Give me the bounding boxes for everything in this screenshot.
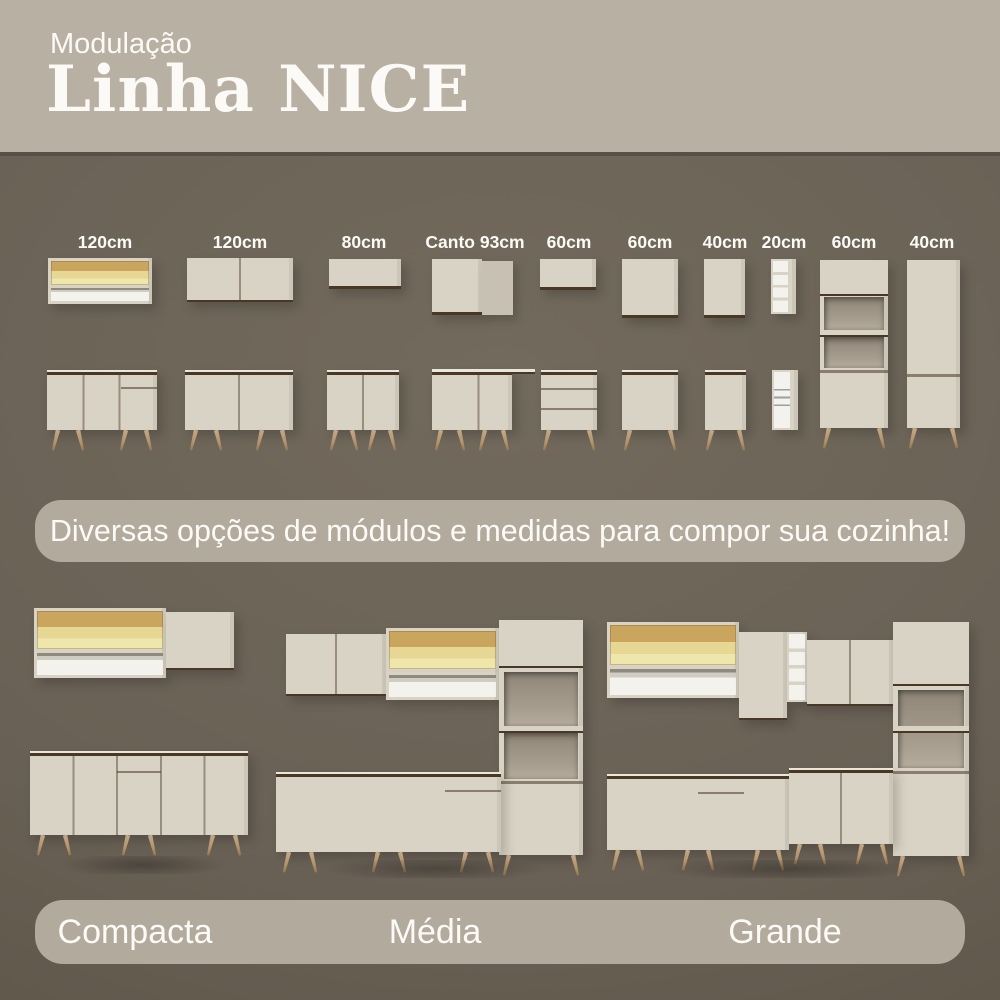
glass-door-panel [389, 631, 496, 669]
oven-tower-with-niches [893, 622, 969, 856]
cabinet-legs [912, 428, 955, 449]
tower-shelf [893, 726, 969, 733]
cabinet-legs [826, 428, 882, 449]
tall-cabinet-2-doors [907, 260, 960, 428]
wood-strip [893, 771, 969, 774]
base-cabinet-3-doors-1-drawer [47, 370, 157, 430]
cabinet-legs [482, 430, 506, 451]
cabinet-legs [709, 430, 742, 451]
cabinet-legs [193, 430, 219, 451]
ground-shadow [28, 856, 258, 874]
size-label-compacta: Compacta [35, 900, 235, 964]
module-size-label: 60cm [820, 232, 888, 254]
wood-strip [820, 370, 888, 373]
tagline-banner: Diversas opções de módulos e medidas par… [35, 500, 965, 562]
module-size-label: 40cm [903, 232, 961, 254]
corner-wall-cabinet [432, 259, 513, 315]
wall-cabinet-glass-doors-with-open-shelf [48, 258, 152, 304]
cabinet-legs [40, 835, 68, 856]
drawer-seam [117, 771, 161, 773]
open-shelf [610, 669, 736, 695]
corner-door [432, 259, 482, 315]
drawer-seam [541, 408, 597, 410]
module-size-label: 120cm [47, 232, 163, 254]
wall-cabinet-2-doors [187, 258, 293, 302]
corner-base-cabinet [432, 370, 512, 430]
oven-tower-with-niches [820, 260, 888, 428]
header-banner: Modulação Linha NICE [0, 0, 1000, 156]
shelf-cubbies [789, 634, 805, 700]
open-shelf [37, 653, 163, 675]
modules-grid: 120cm 120cm 80cm Canto 93cm 60cm 60cm 40… [0, 228, 1000, 482]
cabinet-legs [210, 835, 238, 856]
cabinet-legs [125, 835, 153, 856]
cabinet-legs [371, 430, 393, 451]
size-label-grande: Grande [685, 900, 885, 964]
tagline-text: Diversas opções de módulos e medidas par… [50, 514, 950, 549]
tower-top-door [893, 622, 969, 686]
wall-cabinet-glass-doors-with-open-shelf [607, 622, 739, 698]
wall-cabinet-glass-doors [386, 628, 499, 672]
tower-shelf [499, 726, 583, 733]
tower-top-door [499, 620, 583, 668]
corner-side-panel [482, 261, 513, 315]
tower-niche [504, 672, 578, 726]
oven-tower-with-niches [499, 620, 583, 855]
kitchen-media [276, 598, 594, 890]
base-cabinet-2-doors [185, 370, 293, 430]
module-size-label: 40cm [700, 232, 750, 254]
wall-cabinet-2-doors [807, 640, 893, 706]
glass-door-panel [37, 611, 163, 649]
kitchen-grande [602, 598, 972, 890]
ground-shadow [276, 860, 594, 878]
bottle-rack-unit [772, 370, 798, 430]
cabinet-legs [333, 430, 355, 451]
size-labels-banner: Compacta Média Grande [35, 900, 965, 964]
wall-flap-cabinet [540, 259, 596, 290]
module-size-label: 20cm [758, 232, 810, 254]
wall-cabinet-glass-doors-with-open-shelf [34, 608, 166, 678]
open-shelf-module [386, 672, 499, 700]
base-counter-return [789, 768, 893, 844]
glass-door-panel [51, 261, 149, 285]
kitchen-examples [0, 598, 1000, 892]
cabinet-legs [55, 430, 81, 451]
base-drawer-unit-3-drawers [541, 370, 597, 430]
cabinet-legs [259, 430, 285, 451]
drawer-seam [445, 790, 501, 792]
cabinet-legs [123, 430, 149, 451]
base-counter [276, 772, 501, 852]
corner-wall-cabinet [739, 632, 787, 720]
wood-strip [499, 781, 583, 784]
wall-cabinet-1-door [166, 612, 234, 670]
tower-shelf [820, 330, 888, 337]
module-size-label: 80cm [324, 232, 404, 254]
open-shelf-unit [771, 259, 796, 314]
wall-cabinet-1-door [704, 259, 745, 318]
open-shelf [389, 675, 496, 697]
ground-shadow [602, 860, 972, 878]
base-cabinet-2-doors [327, 370, 399, 430]
cabinet-legs [627, 430, 673, 451]
base-cabinet-1-door [622, 370, 678, 430]
shelf-cubbies [773, 261, 788, 312]
cabinet-legs [438, 430, 462, 451]
base-counter [30, 751, 248, 835]
wood-strip [907, 374, 960, 377]
product-infographic: Modulação Linha NICE 120cm 120cm 80cm Ca… [0, 0, 1000, 1000]
tower-niche [504, 733, 578, 779]
drawer-seam [121, 387, 157, 389]
drawer-seam [698, 792, 744, 794]
module-size-label: 60cm [538, 232, 600, 254]
module-size-label: 120cm [182, 232, 298, 254]
counter-top [432, 369, 535, 372]
page-title: Linha NICE [46, 52, 470, 127]
drawer-seam [541, 388, 597, 390]
module-size-label: 60cm [618, 232, 682, 254]
kitchen-compacta [28, 598, 258, 890]
wall-cabinet-2-doors [286, 634, 386, 696]
wire-rack [774, 372, 790, 428]
base-cabinet-1-door [705, 370, 746, 430]
tower-niche [824, 297, 884, 330]
wall-cabinet-1-door [622, 259, 678, 318]
base-counter [607, 774, 789, 850]
module-size-label: Canto 93cm [420, 232, 530, 254]
wall-flap-cabinet [329, 259, 401, 289]
tower-niche [824, 337, 884, 368]
open-shelf-unit [787, 632, 807, 702]
open-shelf [51, 288, 149, 301]
cabinet-legs [546, 430, 592, 451]
glass-door-panel [610, 625, 736, 665]
tower-top-door [820, 260, 888, 296]
size-label-media: Média [335, 900, 535, 964]
